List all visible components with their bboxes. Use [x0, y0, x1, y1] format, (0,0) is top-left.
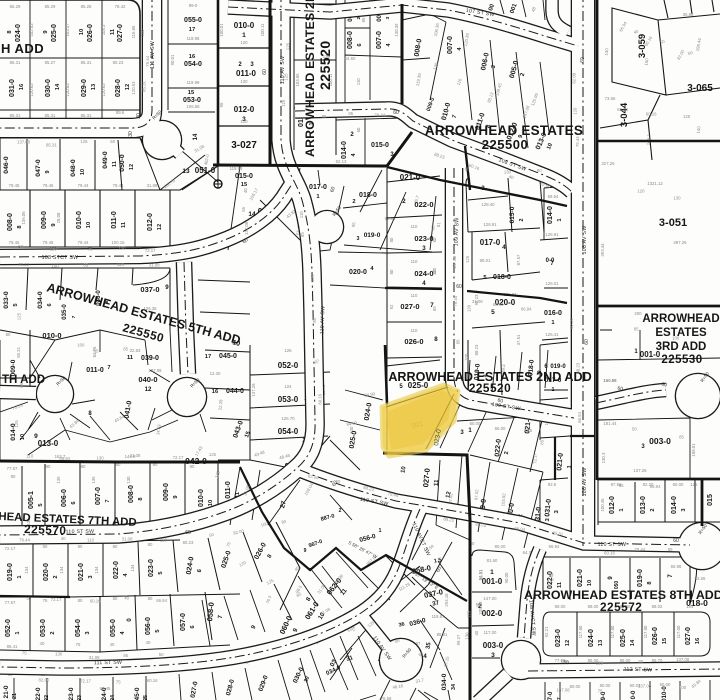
svg-text:125: 125 — [209, 452, 217, 457]
svg-text:2: 2 — [50, 631, 56, 634]
svg-text:60: 60 — [580, 57, 586, 63]
svg-text:125: 125 — [561, 659, 569, 664]
svg-text:128.40: 128.40 — [481, 202, 495, 207]
svg-text:104.3: 104.3 — [101, 24, 106, 35]
svg-text:79.44: 79.44 — [78, 240, 89, 245]
svg-text:130: 130 — [50, 246, 58, 251]
svg-text:3-027: 3-027 — [231, 140, 257, 151]
svg-text:72.17: 72.17 — [532, 453, 537, 464]
svg-text:77.57: 77.57 — [7, 466, 18, 471]
svg-text:019-0: 019-0 — [7, 563, 14, 581]
svg-text:130: 130 — [118, 246, 126, 251]
svg-text:85.31: 85.31 — [16, 346, 21, 357]
svg-text:294.18: 294.18 — [444, 593, 449, 607]
svg-text:3: 3 — [681, 508, 687, 511]
svg-text:9: 9 — [165, 284, 169, 291]
svg-text:009-0: 009-0 — [41, 211, 48, 229]
svg-text:11: 11 — [433, 479, 441, 487]
svg-text:103.85: 103.85 — [295, 73, 300, 87]
svg-text:051-0: 051-0 — [195, 166, 216, 175]
svg-text:3-051: 3-051 — [659, 217, 687, 229]
svg-text:120: 120 — [637, 189, 645, 194]
svg-text:25: 25 — [143, 695, 149, 700]
svg-text:79.44: 79.44 — [453, 295, 458, 306]
svg-text:80: 80 — [389, 237, 394, 242]
svg-text:79.44: 79.44 — [575, 136, 580, 147]
svg-text:126.41: 126.41 — [545, 332, 559, 337]
svg-text:055-0: 055-0 — [184, 17, 202, 24]
svg-text:7: 7 — [71, 315, 77, 318]
svg-text:110: 110 — [411, 328, 418, 333]
svg-text:026-0: 026-0 — [652, 627, 659, 645]
svg-text:80.23: 80.23 — [183, 540, 194, 545]
svg-text:80: 80 — [430, 225, 435, 230]
svg-text:139: 139 — [91, 476, 96, 484]
svg-text:82.00: 82.00 — [572, 72, 577, 83]
svg-text:89.6: 89.6 — [116, 110, 125, 115]
svg-text:79.44: 79.44 — [374, 113, 385, 118]
svg-text:89.01: 89.01 — [480, 258, 491, 263]
svg-text:137.08: 137.08 — [244, 221, 249, 235]
svg-text:H ADD: H ADD — [1, 41, 44, 56]
svg-text:85.31: 85.31 — [141, 81, 146, 92]
svg-text:128.91: 128.91 — [483, 222, 497, 227]
svg-text:100: 100 — [52, 264, 60, 269]
svg-text:69.54: 69.54 — [548, 194, 559, 199]
svg-text:119.99: 119.99 — [230, 166, 243, 171]
svg-text:125: 125 — [596, 660, 604, 665]
svg-text:108 AV SW: 108 AV SW — [582, 468, 588, 497]
svg-text:200: 200 — [634, 311, 642, 316]
svg-text:100.11: 100.11 — [260, 23, 265, 36]
svg-text:010-0: 010-0 — [234, 21, 255, 30]
svg-text:10: 10 — [79, 29, 85, 35]
svg-text:65: 65 — [19, 382, 24, 387]
svg-text:79.44: 79.44 — [19, 538, 30, 543]
svg-text:90.84: 90.84 — [385, 216, 396, 221]
svg-text:052-0: 052-0 — [278, 361, 299, 370]
svg-text:1: 1 — [552, 387, 555, 393]
svg-text:225500: 225500 — [482, 137, 528, 152]
svg-text:188.01: 188.01 — [691, 443, 696, 457]
svg-text:011-0: 011-0 — [236, 69, 257, 78]
svg-text:88.02: 88.02 — [652, 604, 663, 609]
svg-text:85: 85 — [300, 232, 305, 237]
svg-text:027-0: 027-0 — [117, 24, 124, 42]
svg-text:056-0: 056-0 — [145, 617, 152, 635]
svg-text:044-0: 044-0 — [226, 388, 244, 395]
svg-text:40: 40 — [61, 536, 66, 541]
svg-text:046-0: 046-0 — [3, 156, 10, 174]
svg-text:024-0: 024-0 — [15, 24, 22, 42]
svg-text:2: 2 — [402, 198, 406, 205]
svg-text:110 ST SW: 110 ST SW — [66, 529, 95, 536]
svg-text:79.44: 79.44 — [634, 547, 645, 552]
svg-text:90.00: 90.00 — [504, 572, 509, 583]
svg-text:130: 130 — [604, 47, 610, 55]
svg-text:79.44: 79.44 — [145, 55, 150, 66]
svg-text:99-0: 99-0 — [189, 3, 198, 8]
svg-text:102.43: 102.43 — [29, 23, 34, 37]
svg-text:005-1: 005-1 — [28, 491, 35, 509]
svg-text:12: 12 — [145, 386, 152, 393]
svg-text:85.27: 85.27 — [45, 60, 56, 65]
svg-text:7: 7 — [105, 499, 111, 502]
svg-text:10: 10 — [86, 222, 92, 228]
svg-text:126.70: 126.70 — [281, 416, 295, 421]
svg-text:014-0: 014-0 — [341, 141, 348, 159]
svg-text:21: 21 — [12, 693, 18, 699]
svg-text:99.00: 99.00 — [555, 604, 566, 609]
svg-text:100: 100 — [77, 342, 85, 347]
svg-text:85: 85 — [123, 346, 128, 351]
svg-text:60.16: 60.16 — [646, 111, 657, 116]
svg-text:11: 11 — [112, 161, 118, 167]
svg-text:72.17: 72.17 — [51, 597, 62, 602]
svg-text:7: 7 — [107, 365, 110, 371]
svg-text:120: 120 — [240, 40, 248, 45]
svg-text:120: 120 — [432, 267, 437, 275]
svg-text:60.95: 60.95 — [671, 564, 682, 569]
svg-text:10: 10 — [80, 169, 86, 175]
svg-text:134: 134 — [94, 566, 99, 574]
svg-text:120.53: 120.53 — [131, 81, 136, 95]
svg-text:016-0: 016-0 — [544, 310, 562, 317]
svg-text:3RD ADD: 3RD ADD — [656, 341, 707, 353]
svg-text:72.17: 72.17 — [80, 678, 91, 683]
svg-text:31.08: 31.08 — [130, 453, 141, 458]
svg-text:80: 80 — [190, 464, 195, 469]
svg-text:007-0: 007-0 — [95, 487, 102, 505]
svg-text:80: 80 — [453, 217, 458, 222]
svg-text:87.57: 87.57 — [516, 254, 521, 265]
svg-text:80: 80 — [389, 269, 394, 274]
svg-text:0-0: 0-0 — [546, 258, 555, 264]
svg-text:006-0: 006-0 — [61, 489, 68, 507]
svg-text:021-0: 021-0 — [577, 569, 584, 587]
svg-text:019-0: 019-0 — [637, 569, 644, 587]
svg-text:011-0: 011-0 — [111, 211, 118, 229]
svg-text:17: 17 — [205, 354, 211, 360]
svg-text:23: 23 — [77, 695, 83, 700]
svg-text:111 ST SW: 111 ST SW — [94, 660, 122, 666]
svg-text:99.27: 99.27 — [456, 634, 461, 645]
svg-text:020-0: 020-0 — [43, 563, 50, 581]
svg-text:11: 11 — [110, 28, 116, 35]
svg-text:80: 80 — [46, 464, 51, 469]
svg-text:13: 13 — [182, 168, 190, 175]
svg-text:3: 3 — [491, 652, 495, 659]
svg-text:14: 14 — [55, 83, 61, 90]
svg-text:11: 11 — [557, 581, 563, 588]
svg-text:140: 140 — [696, 125, 702, 133]
svg-text:397.26: 397.26 — [673, 240, 687, 245]
svg-text:3: 3 — [85, 631, 91, 634]
svg-text:126: 126 — [284, 348, 292, 353]
svg-text:75: 75 — [22, 650, 27, 655]
svg-text:50: 50 — [159, 652, 164, 657]
svg-text:ARROWHEAD ESTATES 2N: ARROWHEAD ESTATES 2N — [303, 0, 317, 157]
svg-text:65: 65 — [83, 262, 88, 267]
svg-text:013-0: 013-0 — [640, 496, 647, 514]
svg-text:045-0: 045-0 — [219, 353, 237, 360]
svg-text:16: 16 — [695, 638, 701, 644]
svg-text:60: 60 — [673, 538, 679, 544]
svg-text:130: 130 — [97, 456, 105, 461]
svg-text:2: 2 — [352, 199, 355, 205]
svg-text:97.02: 97.02 — [474, 489, 480, 501]
svg-text:015-0: 015-0 — [235, 173, 253, 180]
svg-text:112 ST SW: 112 ST SW — [624, 667, 653, 674]
svg-text:23-0: 23-0 — [68, 687, 75, 700]
svg-text:60: 60 — [584, 339, 590, 345]
svg-text:85.31: 85.31 — [10, 60, 21, 65]
svg-text:100: 100 — [464, 353, 469, 361]
svg-text:137.26: 137.26 — [251, 383, 256, 397]
svg-text:65: 65 — [465, 167, 470, 172]
svg-text:225520: 225520 — [317, 40, 333, 90]
svg-text:125: 125 — [281, 99, 286, 107]
svg-text:52.13: 52.13 — [336, 159, 347, 164]
svg-text:120.63: 120.63 — [29, 83, 34, 97]
svg-text:033-0: 033-0 — [3, 291, 10, 309]
svg-text:130.39: 130.39 — [394, 23, 399, 37]
svg-text:60.16: 60.16 — [604, 551, 615, 556]
svg-text:80: 80 — [113, 544, 118, 549]
svg-text:130.3: 130.3 — [601, 452, 606, 463]
svg-text:1: 1 — [242, 32, 246, 39]
svg-text:100.01: 100.01 — [219, 23, 224, 37]
svg-text:130: 130 — [323, 54, 331, 59]
svg-text:137.08: 137.08 — [638, 684, 652, 689]
svg-text:150: 150 — [644, 57, 650, 65]
svg-text:137.26: 137.26 — [633, 468, 647, 473]
svg-text:85.31: 85.31 — [479, 569, 484, 580]
svg-text:002-0: 002-0 — [482, 609, 503, 618]
svg-text:9: 9 — [43, 30, 49, 33]
svg-text:130: 130 — [673, 196, 681, 201]
svg-text:120: 120 — [117, 262, 125, 267]
svg-text:029-0: 029-0 — [81, 79, 88, 97]
svg-text:125: 125 — [80, 139, 88, 144]
svg-text:60.16: 60.16 — [317, 393, 322, 404]
svg-text:12: 12 — [157, 224, 163, 230]
svg-text:13: 13 — [91, 84, 97, 90]
svg-text:008-0: 008-0 — [128, 485, 135, 503]
svg-text:75: 75 — [314, 359, 319, 364]
svg-text:126.91: 126.91 — [545, 232, 559, 237]
svg-text:110: 110 — [356, 78, 361, 85]
svg-text:021-0: 021-0 — [78, 563, 85, 581]
svg-text:130: 130 — [240, 79, 248, 84]
svg-text:012-0: 012-0 — [147, 213, 154, 231]
svg-text:048-0: 048-0 — [70, 159, 77, 177]
svg-text:2: 2 — [519, 218, 525, 221]
svg-text:053-0: 053-0 — [278, 395, 299, 404]
svg-text:117.80: 117.80 — [610, 625, 615, 638]
svg-text:40: 40 — [243, 188, 248, 193]
svg-text:80: 80 — [78, 598, 83, 603]
svg-text:28.08: 28.08 — [56, 212, 61, 223]
svg-text:120: 120 — [467, 304, 472, 312]
svg-text:125: 125 — [690, 482, 698, 487]
svg-text:5: 5 — [491, 309, 495, 316]
svg-text:34: 34 — [451, 684, 457, 690]
svg-text:010-0: 010-0 — [42, 331, 61, 340]
svg-text:3: 3 — [357, 236, 360, 242]
svg-text:85.31: 85.31 — [46, 143, 57, 148]
svg-text:85: 85 — [619, 483, 624, 488]
svg-text:60.00: 60.00 — [673, 482, 684, 487]
svg-text:110: 110 — [411, 224, 418, 229]
svg-text:018-0: 018-0 — [359, 192, 377, 199]
svg-text:66.94: 66.94 — [577, 412, 582, 423]
svg-text:22.83: 22.83 — [130, 348, 141, 353]
svg-text:017-0: 017-0 — [309, 184, 327, 191]
svg-text:117.80: 117.80 — [578, 625, 583, 638]
svg-text:60: 60 — [393, 110, 399, 116]
svg-text:9: 9 — [34, 433, 38, 440]
svg-text:027-0: 027-0 — [685, 627, 692, 645]
svg-text:120: 120 — [240, 119, 248, 124]
svg-text:125: 125 — [14, 420, 19, 428]
svg-text:80: 80 — [537, 168, 542, 173]
svg-text:60.00: 60.00 — [470, 421, 481, 426]
svg-text:011-0: 011-0 — [86, 367, 104, 374]
svg-text:85: 85 — [634, 327, 639, 332]
svg-text:88.23: 88.23 — [576, 362, 581, 373]
svg-text:11: 11 — [121, 221, 127, 228]
svg-text:025-0: 025-0 — [51, 24, 58, 42]
svg-text:100.15: 100.15 — [111, 240, 125, 245]
svg-text:79.45: 79.45 — [43, 240, 54, 245]
svg-text:117.00: 117.00 — [484, 630, 497, 635]
svg-text:026-0: 026-0 — [87, 24, 94, 42]
svg-text:40: 40 — [110, 642, 115, 647]
svg-text:126.01: 126.01 — [545, 281, 559, 286]
svg-text:110: 110 — [411, 293, 418, 298]
svg-text:014-0: 014-0 — [547, 206, 554, 224]
svg-text:012-0: 012-0 — [609, 496, 616, 514]
svg-text:008-0: 008-0 — [7, 213, 14, 231]
svg-text:80: 80 — [113, 596, 118, 601]
svg-text:31.08: 31.08 — [149, 263, 160, 268]
svg-text:95: 95 — [219, 102, 224, 107]
svg-text:50: 50 — [18, 244, 23, 249]
svg-text:65: 65 — [94, 349, 99, 354]
svg-text:15: 15 — [662, 637, 668, 644]
svg-text:64.50: 64.50 — [345, 56, 356, 61]
svg-text:31.08: 31.08 — [472, 299, 483, 304]
svg-text:88.23: 88.23 — [474, 344, 479, 355]
svg-text:137.08: 137.08 — [17, 139, 31, 144]
svg-text:80.23: 80.23 — [113, 60, 124, 65]
svg-text:012-0: 012-0 — [234, 105, 255, 114]
svg-text:019-0: 019-0 — [364, 232, 381, 239]
svg-text:117.80: 117.80 — [643, 625, 648, 638]
svg-text:5: 5 — [13, 303, 19, 306]
svg-text:95: 95 — [348, 111, 353, 116]
svg-text:018-0: 018-0 — [493, 274, 511, 281]
svg-text:90.01: 90.01 — [170, 54, 175, 65]
svg-text:88.00: 88.00 — [588, 604, 599, 609]
svg-text:130: 130 — [126, 476, 131, 484]
svg-text:66.94: 66.94 — [493, 302, 504, 307]
svg-text:003-0: 003-0 — [649, 436, 671, 446]
svg-text:66.94: 66.94 — [650, 484, 661, 489]
svg-text:92.21: 92.21 — [544, 626, 549, 637]
svg-text:137.08: 137.08 — [452, 255, 457, 269]
svg-text:024-0: 024-0 — [414, 269, 433, 278]
svg-text:3: 3 — [385, 16, 391, 19]
svg-text:10: 10 — [208, 500, 214, 506]
svg-text:035-0: 035-0 — [62, 304, 68, 320]
svg-text:80: 80 — [11, 474, 16, 479]
svg-text:72.17: 72.17 — [145, 248, 156, 253]
svg-text:11: 11 — [127, 355, 134, 361]
svg-text:50: 50 — [632, 427, 637, 432]
svg-text:125: 125 — [285, 42, 290, 50]
svg-text:60.00: 60.00 — [660, 682, 671, 687]
svg-text:119.87: 119.87 — [432, 614, 445, 619]
svg-text:22: 22 — [44, 695, 50, 700]
svg-text:057-0: 057-0 — [180, 613, 187, 631]
svg-text:117.00: 117.00 — [676, 625, 681, 638]
svg-text:31.08: 31.08 — [89, 655, 100, 660]
svg-text:85.28: 85.28 — [81, 4, 92, 9]
svg-text:85: 85 — [668, 547, 673, 552]
svg-text:100: 100 — [140, 29, 145, 37]
svg-text:115.85: 115.85 — [131, 25, 136, 38]
svg-text:80: 80 — [148, 542, 153, 547]
svg-text:60.16: 60.16 — [147, 678, 158, 683]
svg-text:100: 100 — [672, 336, 680, 341]
svg-text:025-0: 025-0 — [620, 629, 627, 647]
svg-text:65: 65 — [241, 206, 246, 211]
svg-text:110 AV SW: 110 AV SW — [320, 306, 327, 335]
svg-text:327.26: 327.26 — [601, 161, 615, 166]
svg-text:66.94: 66.94 — [521, 307, 532, 312]
svg-text:034-0: 034-0 — [37, 291, 44, 309]
svg-text:31.08: 31.08 — [122, 537, 133, 542]
svg-text:66.94: 66.94 — [156, 598, 167, 603]
svg-text:ESTATES: ESTATES — [655, 327, 707, 339]
svg-text:014-0: 014-0 — [671, 496, 678, 514]
svg-text:80: 80 — [6, 332, 11, 337]
svg-text:66.94: 66.94 — [549, 544, 560, 549]
svg-text:023-0: 023-0 — [148, 559, 155, 577]
svg-text:3: 3 — [88, 575, 94, 578]
svg-text:95: 95 — [123, 653, 128, 658]
svg-text:003-0: 003-0 — [483, 641, 504, 650]
svg-text:72.17: 72.17 — [5, 546, 16, 551]
svg-text:027-0: 027-0 — [400, 302, 419, 311]
svg-text:92: 92 — [389, 304, 394, 309]
svg-text:015-0: 015-0 — [509, 206, 516, 223]
svg-text:10: 10 — [20, 434, 26, 440]
svg-text:79.45: 79.45 — [43, 183, 54, 188]
svg-text:2: 2 — [53, 575, 59, 578]
svg-text:139: 139 — [56, 476, 61, 484]
svg-text:80.00: 80.00 — [495, 544, 506, 549]
svg-text:12: 12 — [565, 640, 571, 646]
svg-text:225572: 225572 — [600, 600, 642, 614]
svg-text:037-0: 037-0 — [140, 285, 159, 294]
svg-text:2: 2 — [504, 451, 510, 455]
svg-text:40: 40 — [146, 640, 151, 645]
svg-text:015: 015 — [707, 494, 714, 506]
svg-text:15: 15 — [188, 90, 195, 96]
